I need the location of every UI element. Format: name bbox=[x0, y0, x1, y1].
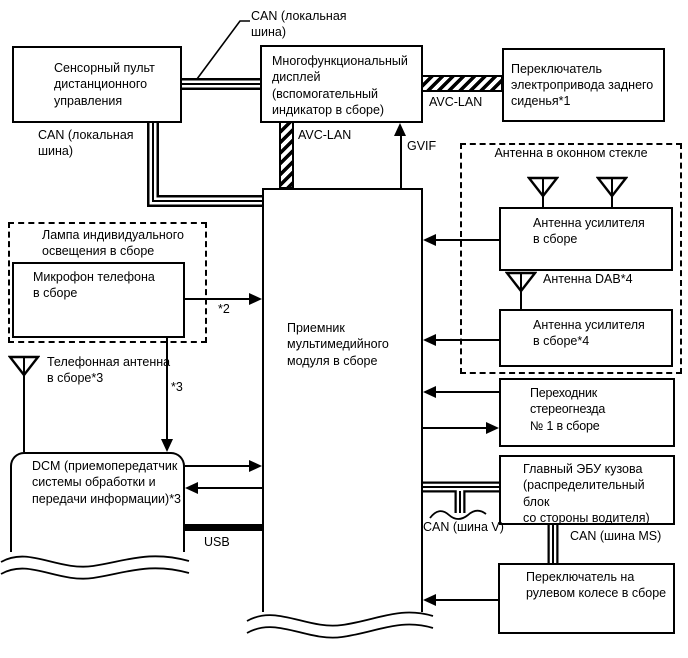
avc-lan-horizontal-label: AVC-LAN bbox=[429, 94, 482, 110]
multifunction-display-box: Многофункциональный дисплей (вспомогател… bbox=[260, 45, 423, 123]
antenna-amplifier-2-label: Антенна усилителя в сборе*4 bbox=[501, 311, 671, 350]
dcm-torn-edge bbox=[1, 556, 189, 578]
receiver-to-dcm-line bbox=[197, 487, 262, 489]
receiver-to-adapter-arrowhead bbox=[486, 422, 499, 434]
footnote-3-label: *3 bbox=[171, 379, 183, 395]
gvif-arrowhead bbox=[394, 123, 406, 136]
rear-seat-switch-label: Переключатель электропривода заднего сид… bbox=[504, 61, 653, 110]
receiver-torn-edge bbox=[247, 612, 433, 637]
steering-pad-switch-box: Переключатель на рулевом колесе в сборе bbox=[498, 563, 675, 634]
multimedia-receiver-label: Приемник мультимедийного модуля в сборе bbox=[264, 190, 421, 369]
rear-seat-switch-box: Переключатель электропривода заднего сид… bbox=[502, 48, 665, 122]
can-local-left-label: CAN (локальная шина) bbox=[38, 127, 134, 160]
phone-microphone-box: Микрофон телефона в сборе bbox=[12, 262, 185, 338]
can-bus-v-line bbox=[423, 485, 503, 519]
can-local-top-label: CAN (локальная шина) bbox=[251, 8, 347, 41]
gvif-line bbox=[400, 134, 402, 188]
phone-antenna-label: Телефонная антенна в сборе*3 bbox=[47, 354, 170, 387]
dcm-to-receiver-line bbox=[185, 465, 251, 467]
sensor-remote-label: Сенсорный пульт дистанционного управлени… bbox=[14, 60, 155, 109]
steering-to-receiver-line bbox=[435, 599, 498, 601]
adapter-to-receiver-line bbox=[435, 391, 499, 393]
avc-lan-bus-horizontal bbox=[421, 75, 503, 92]
dcm-box: DCM (приемопередатчик системы обработки … bbox=[10, 452, 185, 552]
stereo-jack-adapter-box: Переходник стереогнезда № 1 в сборе bbox=[499, 378, 675, 447]
mic-to-dcm-arrowhead bbox=[161, 439, 173, 452]
can-v-break-squiggle bbox=[430, 511, 486, 519]
antenna-stem bbox=[542, 196, 544, 207]
usb-bus bbox=[185, 524, 262, 531]
avc-lan-bus-vertical bbox=[279, 121, 294, 189]
can-bus-left-l bbox=[153, 123, 266, 201]
amp2-to-receiver-line bbox=[435, 339, 499, 341]
phone-microphone-label: Микрофон телефона в сборе bbox=[14, 264, 183, 302]
receiver-to-adapter-line bbox=[423, 427, 488, 429]
antenna-amplifier-1-label: Антенна усилителя в сборе bbox=[501, 209, 671, 248]
receiver-to-dcm-arrowhead bbox=[185, 482, 198, 494]
dcm-to-receiver-arrowhead bbox=[249, 460, 262, 472]
antenna-stem bbox=[611, 196, 613, 207]
avc-lan-vertical-label: AVC-LAN bbox=[298, 127, 351, 143]
mic-to-receiver-arrowhead bbox=[249, 293, 262, 305]
can-bus-v-label: CAN (шина V) bbox=[423, 519, 504, 535]
window-glass-antenna-group-label: Антенна в оконном стекле bbox=[460, 145, 682, 161]
steering-to-receiver-arrowhead bbox=[423, 594, 436, 606]
lamp-assembly-group-label: Лампа индивидуального освещения в сборе bbox=[10, 224, 205, 260]
can-top-leader-line bbox=[197, 21, 250, 79]
footnote-2-label: *2 bbox=[218, 301, 230, 317]
dcm-label: DCM (приемопередатчик системы обработки … bbox=[12, 454, 183, 507]
can-bus-ms-label: CAN (шина MS) bbox=[570, 528, 661, 544]
amp1-to-receiver-arrowhead bbox=[423, 234, 436, 246]
sensor-remote-box: Сенсорный пульт дистанционного управлени… bbox=[12, 46, 182, 123]
gvif-label: GVIF bbox=[407, 138, 436, 154]
stereo-jack-adapter-label: Переходник стереогнезда № 1 в сборе bbox=[501, 380, 673, 434]
phone-antenna-stem bbox=[23, 375, 25, 452]
steering-pad-switch-label: Переключатель на рулевом колесе в сборе bbox=[500, 565, 673, 602]
dab-antenna-label: Антенна DAB*4 bbox=[543, 271, 633, 287]
mic-to-receiver-line bbox=[185, 298, 251, 300]
amp2-to-receiver-arrowhead bbox=[423, 334, 436, 346]
wiring-diagram-canvas: Лампа индивидуального освещения в сборе … bbox=[0, 0, 688, 658]
amp1-to-receiver-line bbox=[435, 239, 499, 241]
antenna-amplifier-1-box: Антенна усилителя в сборе bbox=[499, 207, 673, 271]
main-body-ecu-box: Главный ЭБУ кузова (распределительный бл… bbox=[499, 455, 675, 525]
antenna-amplifier-2-box: Антенна усилителя в сборе*4 bbox=[499, 309, 673, 367]
antenna-stem bbox=[520, 291, 522, 309]
usb-label: USB bbox=[204, 534, 230, 550]
main-body-ecu-label: Главный ЭБУ кузова (распределительный бл… bbox=[501, 457, 673, 526]
multimedia-receiver-box: Приемник мультимедийного модуля в сборе bbox=[262, 188, 423, 612]
multifunction-display-label: Многофункциональный дисплей (вспомогател… bbox=[262, 47, 421, 118]
adapter-to-receiver-arrowhead bbox=[423, 386, 436, 398]
